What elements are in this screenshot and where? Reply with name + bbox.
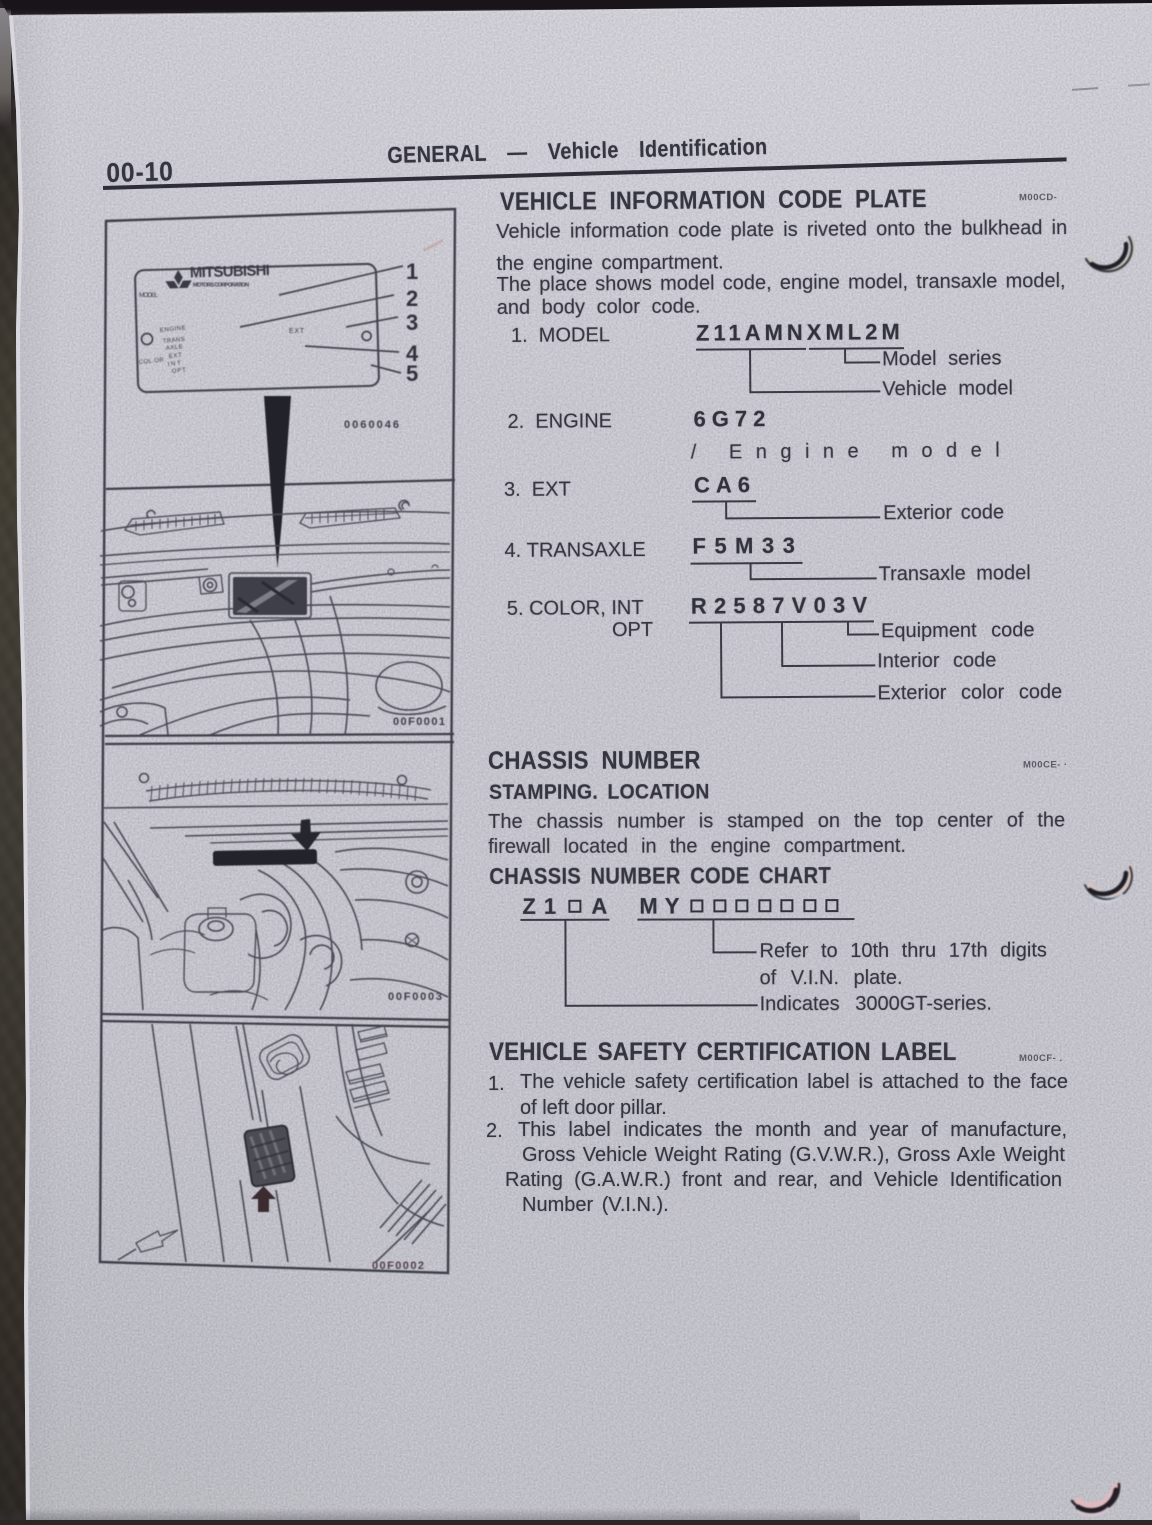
svg-text:3: 3 bbox=[406, 310, 418, 335]
svg-text:2: 2 bbox=[406, 286, 418, 311]
svg-text:5: 5 bbox=[406, 361, 418, 386]
svg-text:INT: INT bbox=[168, 361, 182, 368]
svg-text:COL.OR: COL.OR bbox=[139, 357, 165, 366]
svg-text:OPT: OPT bbox=[172, 368, 187, 375]
svg-text:EXT: EXT bbox=[169, 353, 183, 360]
svg-text:ENGINE: ENGINE bbox=[160, 325, 186, 334]
svg-text:00F0001: 00F0001 bbox=[393, 716, 445, 728]
svg-text:00F0002: 00F0002 bbox=[372, 1260, 424, 1272]
svg-text:MOTORS CORPORATION: MOTORS CORPORATION bbox=[193, 283, 249, 289]
svg-text:1: 1 bbox=[406, 259, 418, 284]
svg-text:MODEL: MODEL bbox=[139, 292, 158, 299]
svg-text:00F0003: 00F0003 bbox=[388, 991, 442, 1003]
svg-text:EXT: EXT bbox=[289, 328, 305, 335]
svg-text:MITSUBISHI: MITSUBISHI bbox=[190, 262, 270, 282]
svg-text:AXLE: AXLE bbox=[166, 344, 184, 352]
svg-text:0060046: 0060046 bbox=[344, 419, 399, 431]
